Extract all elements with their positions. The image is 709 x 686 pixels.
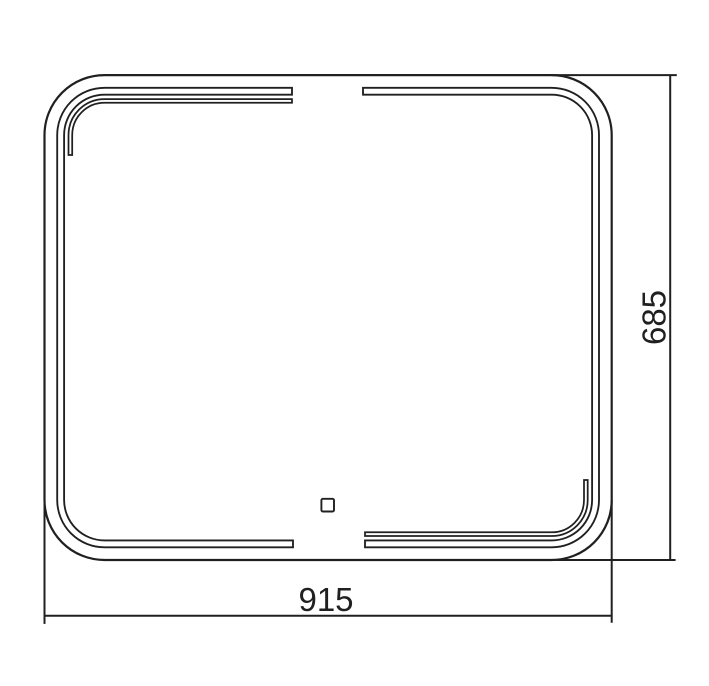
svg-text:915: 915: [298, 581, 353, 618]
svg-text:685: 685: [635, 290, 672, 345]
